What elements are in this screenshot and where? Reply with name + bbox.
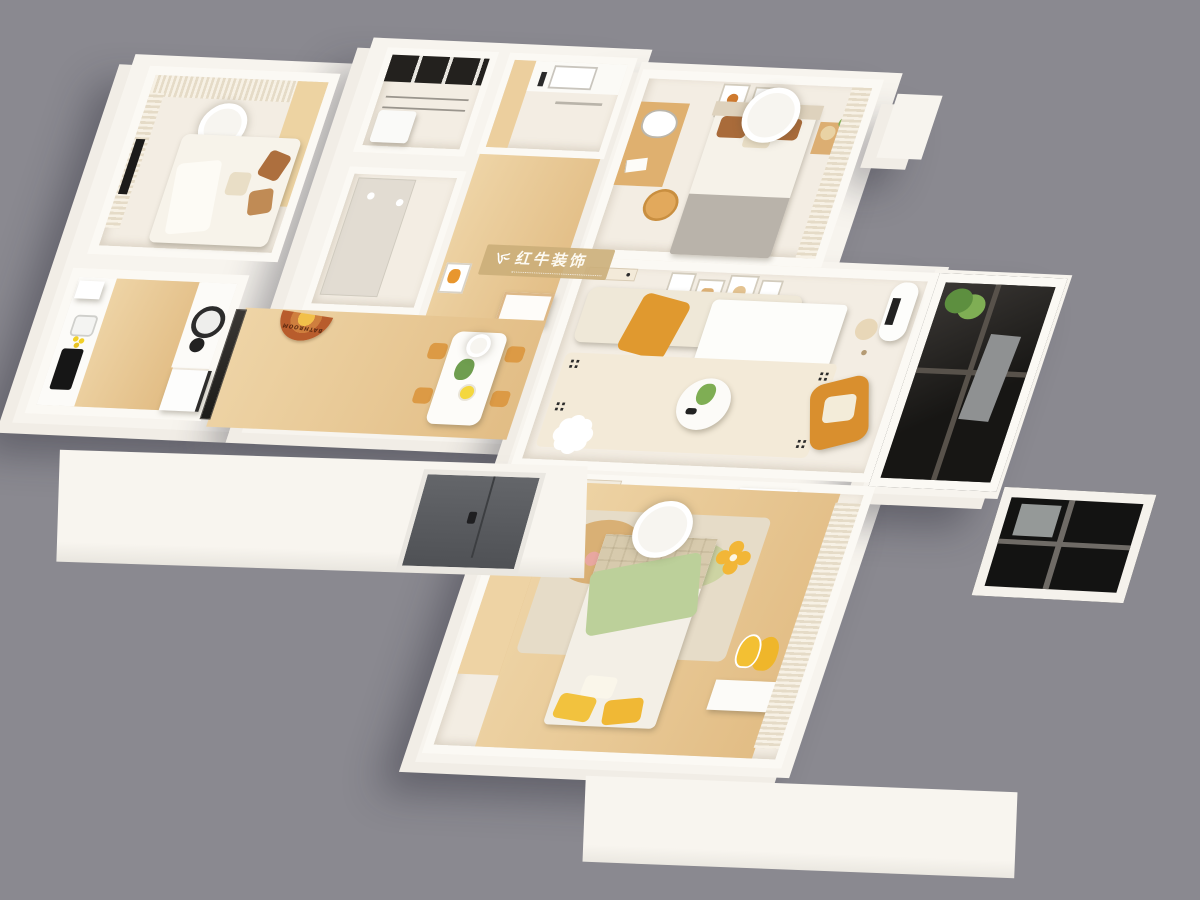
facade-entry xyxy=(56,450,587,579)
pillow-yellow xyxy=(601,697,645,725)
flower-mat xyxy=(562,426,584,443)
pillow-yellow xyxy=(551,692,598,723)
armchair-pillow xyxy=(821,393,857,423)
watermark-subtext xyxy=(511,271,601,276)
pillow xyxy=(256,149,293,182)
rug-dots xyxy=(797,440,801,443)
room-living xyxy=(510,257,940,482)
doormat-text: BATHROOM xyxy=(281,321,324,333)
ac-poster xyxy=(884,298,901,325)
window-mullion xyxy=(997,539,1130,551)
door-handle xyxy=(466,512,477,524)
floor-lamp xyxy=(852,318,881,340)
rug-dots xyxy=(820,372,824,375)
dining-chair xyxy=(503,346,526,363)
wall-art xyxy=(437,262,472,293)
blanket-gray xyxy=(669,194,790,259)
door-handle xyxy=(626,273,631,277)
vanity-mirror xyxy=(637,109,682,139)
rug-dots xyxy=(571,360,575,363)
vase-plant xyxy=(693,383,718,405)
dining-chair xyxy=(488,390,511,407)
pendant-lamp xyxy=(463,334,494,358)
facade-bottom-bedroom xyxy=(583,776,1018,879)
art-motif xyxy=(446,269,462,284)
fruit-plate xyxy=(456,384,479,402)
bull-logo-icon xyxy=(492,250,514,267)
table-plant xyxy=(452,358,477,380)
vanity-chair xyxy=(638,188,683,221)
pillow xyxy=(223,172,252,196)
laundry-window xyxy=(384,55,490,86)
tray-item xyxy=(685,408,698,415)
sofa-throw xyxy=(615,292,692,361)
towel-bar xyxy=(555,101,603,106)
bed xyxy=(147,134,302,248)
watermark-title: 红牛装饰 xyxy=(513,251,590,269)
entry-door xyxy=(396,469,547,574)
floorplan: BATHROOM xyxy=(0,30,1149,801)
ac-unit xyxy=(875,282,922,342)
washing-machine xyxy=(369,110,417,144)
glass-reflection xyxy=(1012,504,1062,538)
mirror xyxy=(547,65,598,90)
drying-rack xyxy=(386,96,469,101)
duvet-fold xyxy=(164,160,222,235)
pillow xyxy=(247,188,274,216)
bay-window xyxy=(972,487,1157,603)
hallway-dining: BATHROOM xyxy=(206,308,546,440)
open-book xyxy=(624,158,647,173)
apartment-3d-floorplan-render: BATHROOM xyxy=(0,0,1200,900)
watermark: 红牛装饰 xyxy=(478,244,616,280)
armchair xyxy=(810,373,869,453)
rug-dots xyxy=(556,402,560,405)
bathroom-doormat: BATHROOM xyxy=(271,310,333,344)
